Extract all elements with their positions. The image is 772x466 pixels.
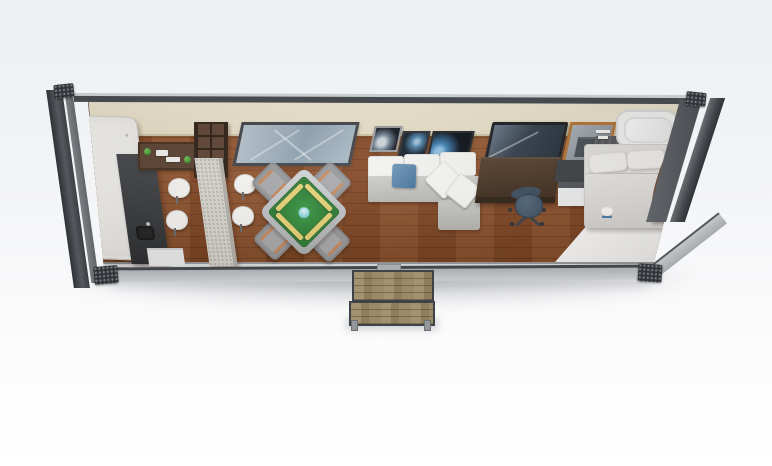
towel-bar	[596, 130, 610, 133]
stool-leg	[176, 196, 178, 204]
render-stage	[0, 0, 772, 466]
entry-step-lower	[349, 301, 435, 326]
office-chair	[508, 186, 548, 230]
glass-reflection	[294, 129, 344, 160]
kitchen-sink	[135, 226, 155, 240]
sectional-sofa	[368, 152, 480, 230]
wall-shelf	[138, 142, 198, 170]
screw-dot	[94, 238, 97, 241]
stool-leg	[240, 224, 242, 232]
chair-seat	[515, 194, 543, 218]
caster-wheel	[540, 222, 544, 226]
screw-dot	[80, 126, 83, 129]
art-frame-earth-1	[369, 126, 403, 152]
container-interior	[76, 102, 694, 270]
bar-counter	[194, 158, 237, 266]
towel-bar	[598, 136, 608, 139]
nightstand-front	[558, 182, 584, 206]
faucet	[146, 222, 151, 226]
bar-stool	[232, 206, 254, 226]
shelf-dishes	[166, 157, 180, 162]
corner-casting-top-left	[53, 83, 74, 99]
shelf-dishes	[156, 150, 168, 156]
nightstand	[554, 160, 587, 182]
stool-leg	[242, 192, 244, 200]
caster-wheel	[508, 208, 512, 212]
bar-stool	[166, 210, 188, 230]
entry-step-upper	[352, 270, 434, 302]
stool-leg	[174, 228, 176, 236]
corner-casting-top-right	[685, 91, 706, 107]
blue-pillow	[392, 164, 417, 189]
tub-basin	[624, 117, 672, 143]
towel-roll	[601, 207, 613, 216]
plant-icon	[144, 148, 151, 155]
bed-pillow	[588, 151, 628, 173]
plant-icon	[184, 156, 191, 163]
wall-window	[232, 122, 359, 166]
bar-stool	[168, 178, 190, 198]
screw-dot	[125, 134, 128, 137]
towel-roll-stripe	[602, 216, 612, 218]
step-leg	[351, 320, 358, 331]
step-leg	[424, 320, 431, 331]
corner-casting-bottom-left	[93, 265, 118, 285]
corner-casting-bottom-right	[637, 263, 662, 283]
counter-front-panel	[147, 248, 186, 266]
caster-wheel	[510, 222, 514, 226]
